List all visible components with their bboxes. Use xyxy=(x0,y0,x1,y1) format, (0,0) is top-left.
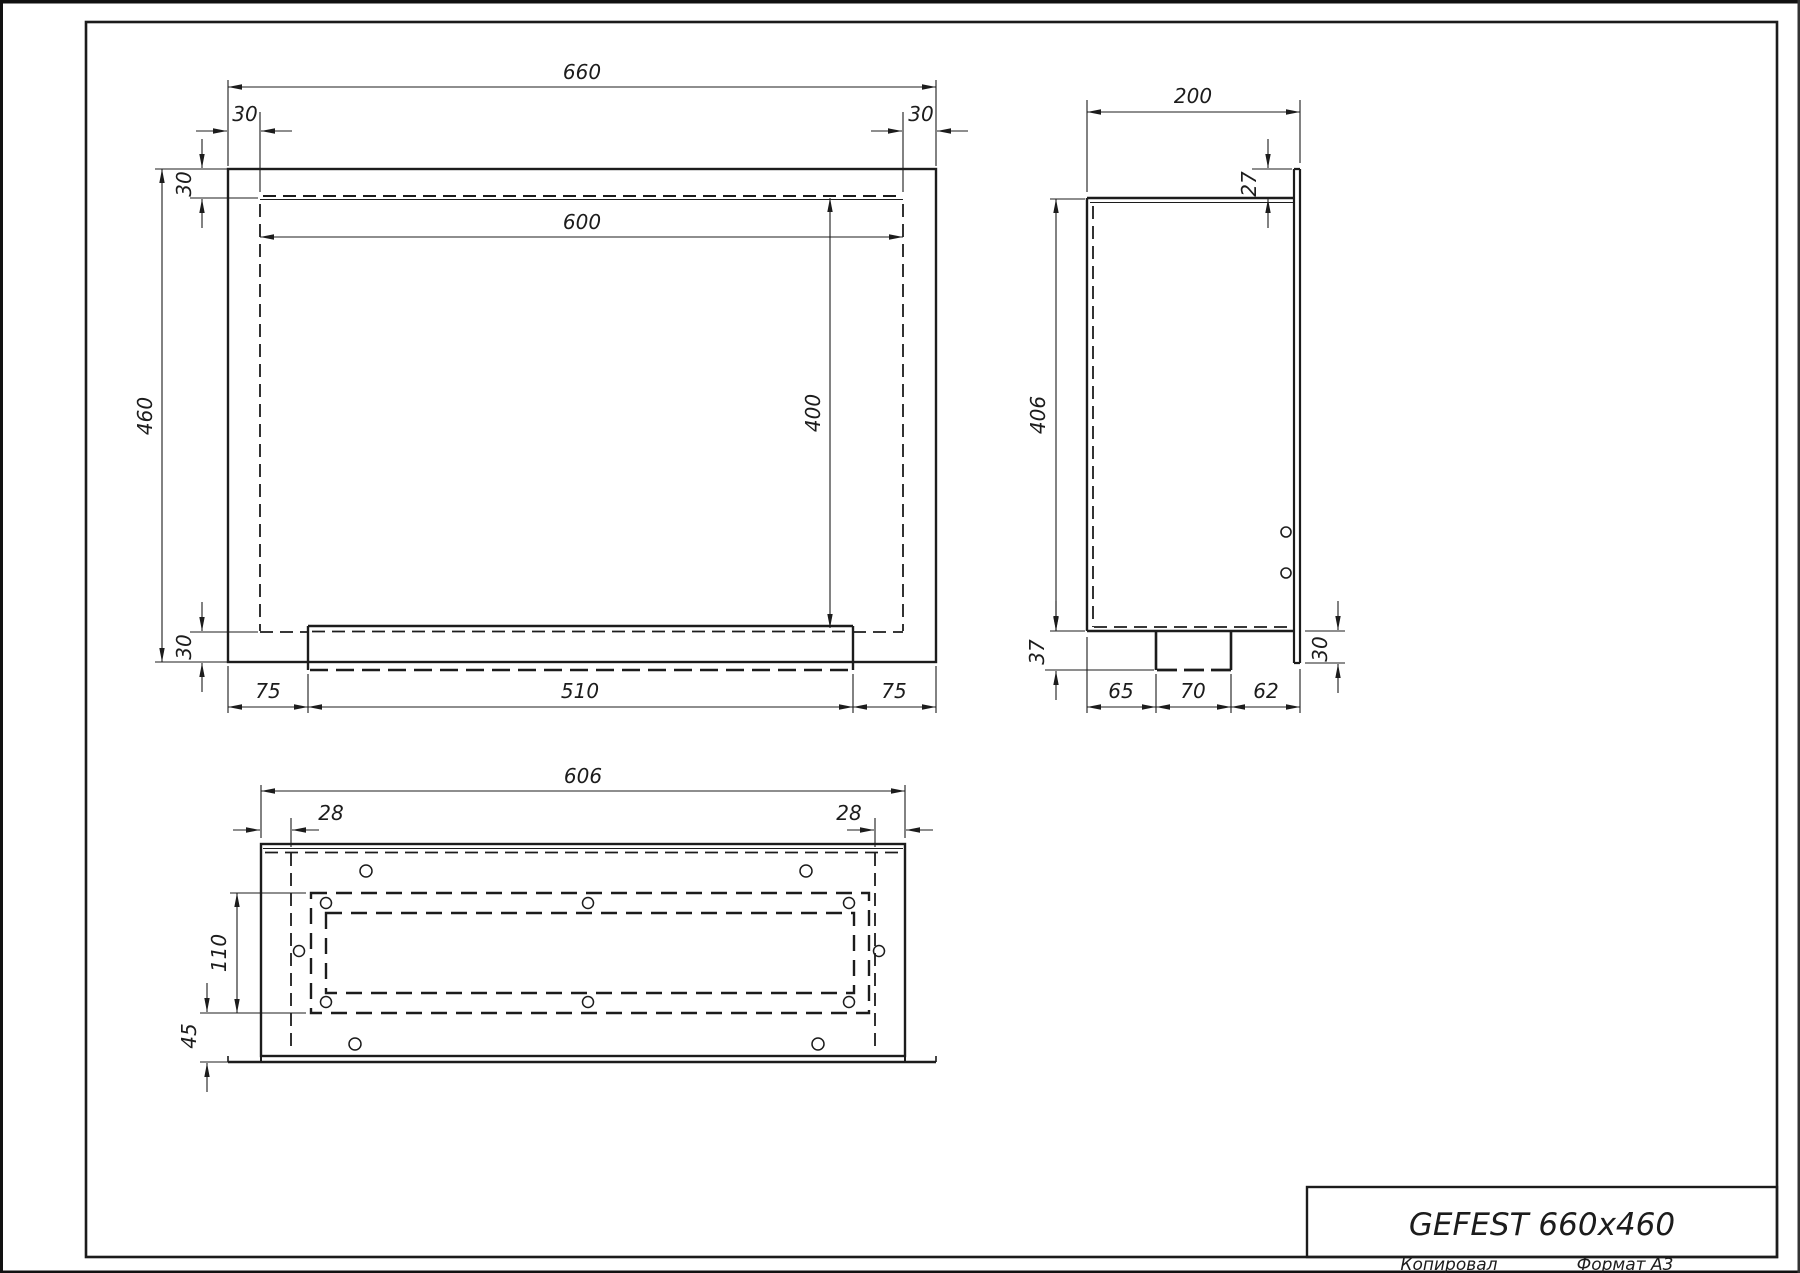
dim-front-overall-width: 660 xyxy=(563,60,601,84)
front-view: 660 30 30 30 460 600 400 xyxy=(133,60,968,713)
title-block: GEFEST 660x460 xyxy=(1307,1187,1777,1257)
drawing-frame xyxy=(86,22,1777,1257)
dim-front-tray-right: 75 xyxy=(881,679,906,703)
footer-copied-label: Копировал xyxy=(1400,1255,1497,1273)
dim-bottom-opening-depth: 110 xyxy=(207,934,231,972)
drawing-canvas: 660 30 30 30 460 600 400 xyxy=(0,0,1800,1273)
dim-bottom-body-width: 606 xyxy=(564,764,602,788)
dim-side-lip-top: 27 xyxy=(1237,171,1261,197)
dim-bottom-bend-left: 28 xyxy=(318,801,343,825)
front-view-dimensions: 660 30 30 30 460 600 400 xyxy=(133,60,968,713)
page-borders xyxy=(0,0,1800,1273)
dim-side-depth: 200 xyxy=(1174,84,1212,108)
title-model-name: GEFEST 660x460 xyxy=(1409,1207,1675,1243)
dim-front-tray-left: 75 xyxy=(255,679,280,703)
dim-front-flange-right: 30 xyxy=(908,102,933,126)
dim-front-tray-width: 510 xyxy=(561,679,599,703)
dim-side-body-height: 406 xyxy=(1026,396,1050,434)
dim-front-opening-height: 400 xyxy=(801,394,825,432)
dim-bottom-bend-right: 28 xyxy=(836,801,861,825)
dim-front-flange-left: 30 xyxy=(232,102,257,126)
bottom-view-geometry xyxy=(228,844,936,1062)
dim-side-duct-width: 70 xyxy=(1180,679,1205,703)
dim-front-overall-height: 460 xyxy=(133,397,157,435)
footer-format-label: Формат А3 xyxy=(1577,1255,1674,1273)
dim-side-duct-offset-left: 65 xyxy=(1108,679,1133,703)
bottom-view: 606 28 28 110 45 xyxy=(177,764,936,1092)
dim-side-lip-bottom: 30 xyxy=(1308,636,1332,661)
side-view: 200 27 406 37 65 70 62 xyxy=(1025,84,1345,713)
dim-side-duct-depth: 37 xyxy=(1025,639,1049,665)
dim-front-flange-top: 30 xyxy=(172,171,196,196)
drawing-sheet: 660 30 30 30 460 600 400 xyxy=(0,0,1800,1273)
dim-side-duct-offset-right: 62 xyxy=(1253,679,1278,703)
side-view-dimensions: 200 27 406 37 65 70 62 xyxy=(1025,84,1345,713)
dim-front-flange-bottom: 30 xyxy=(172,634,196,659)
dim-front-opening-width: 600 xyxy=(563,210,601,234)
dim-bottom-flange-offset: 45 xyxy=(177,1023,201,1048)
side-view-geometry xyxy=(1087,169,1300,670)
